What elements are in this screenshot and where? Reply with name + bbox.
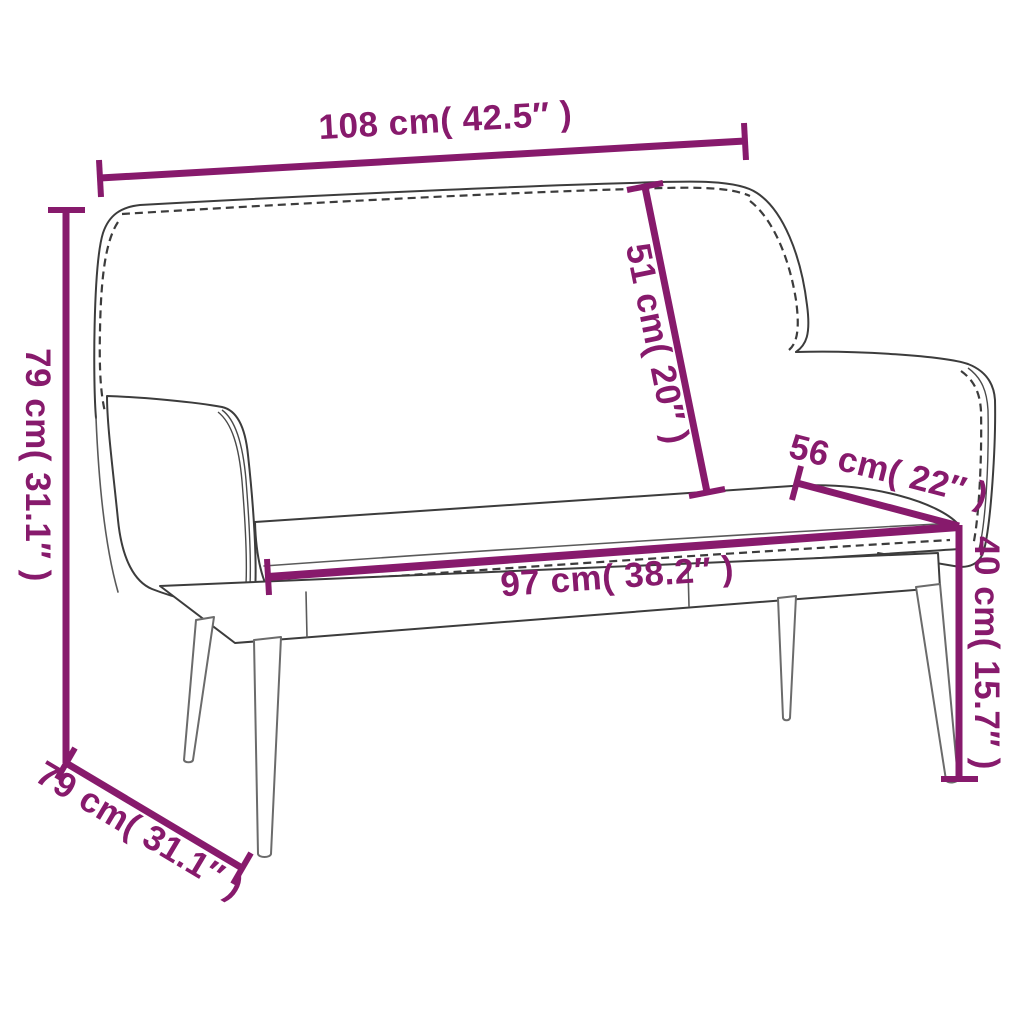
backrest-right-stitch [750,201,798,350]
dimension-label-overall-width: 108 cm( 42.5″ ) [318,94,574,147]
bench-drawing [94,182,995,857]
front-right-leg [916,584,958,783]
dimension-label-seat-height: 40 cm( 15.7″ ) [967,536,1006,770]
dimension-overall-depth: 79 cm( 31.1″ ) [29,748,251,907]
dimension-seat-depth: 56 cm( 22″ ) [785,427,992,526]
dimension-label-backrest-height: 51 cm( 20″ ) [618,240,697,447]
dimension-tick-backrest-height-bottom [689,489,725,496]
left-armrest-outline [107,396,256,611]
dimension-overall-height: 79 cm( 31.1″ ) [18,210,85,763]
dimension-label-overall-height: 79 cm( 31.1″ ) [18,348,57,582]
dimension-line-overall-width [100,141,745,178]
back-left-leg [184,617,214,762]
dimension-label-seat-depth: 56 cm( 22″ ) [785,427,992,515]
backrest-left-stitch [100,222,118,412]
right-armrest-stitch [961,371,981,546]
base-rail-seam-left [306,592,307,637]
product-dimension-image: 108 cm( 42.5″ ) 79 cm( 31.1″ ) 51 cm( 20… [0,0,1024,1024]
front-left-leg [254,637,281,857]
dimension-tick-overall-width-left [99,160,101,197]
dimension-label-overall-depth: 79 cm( 31.1″ ) [29,753,250,906]
backrest-outline [94,182,808,418]
dimension-tick-seat-width-left [267,559,269,595]
dimension-tick-overall-width-right [744,123,746,160]
dimension-diagram-canvas: 108 cm( 42.5″ ) 79 cm( 31.1″ ) 51 cm( 20… [0,0,1024,1024]
back-right-leg [778,596,796,720]
dimension-backrest-height: 51 cm( 20″ ) [618,183,725,496]
